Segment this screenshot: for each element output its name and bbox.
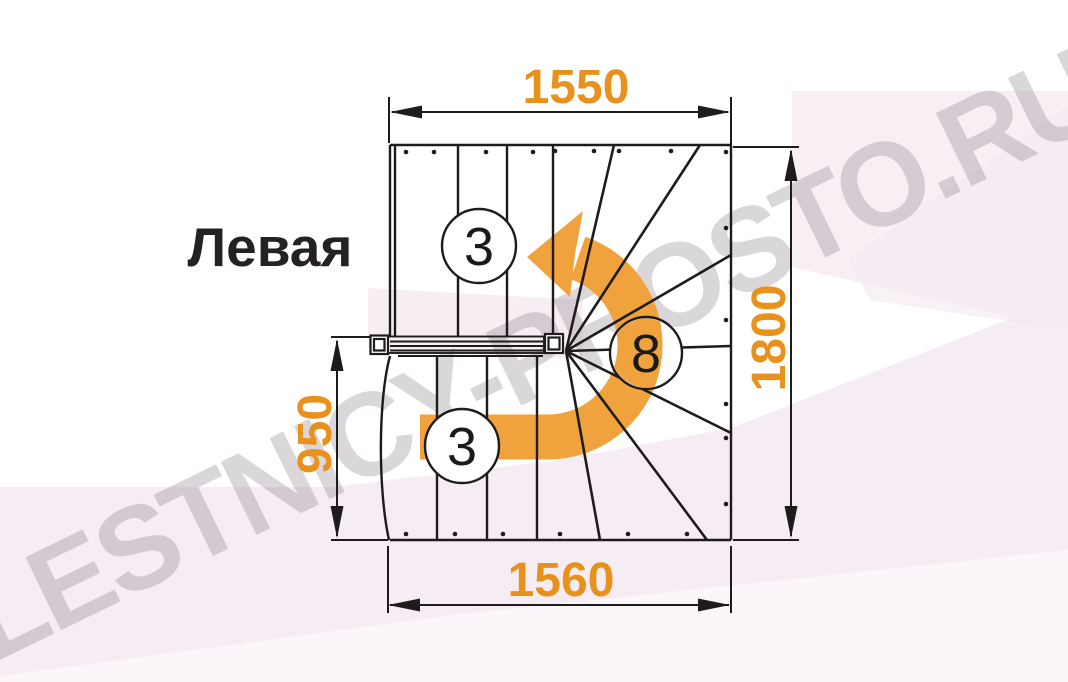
- staircase-drawing: 8 3 3 1550 1800: [0, 0, 1068, 682]
- dimension-left-value: 950: [289, 394, 342, 474]
- dimension-top-value: 1550: [523, 61, 630, 114]
- curved-left-stringer: [381, 356, 390, 540]
- winder-count-label: 8: [631, 324, 661, 384]
- newel-post-right: [545, 334, 563, 353]
- dimension-bottom-value: 1560: [508, 554, 615, 607]
- landing-bar: [388, 337, 544, 357]
- plan-title: Левая: [188, 216, 353, 278]
- bottom-flight-count-label: 3: [447, 417, 477, 477]
- dimension-bottom: 1560: [388, 546, 731, 613]
- newel-post-left: [371, 336, 389, 355]
- dimension-top: 1550: [389, 61, 731, 145]
- bottom-flight-count-badge: 3: [425, 409, 499, 483]
- top-flight-count-label: 3: [464, 217, 494, 277]
- dimension-right-value: 1800: [743, 285, 796, 392]
- staircase-plan-figure: LESTNICY-PROSTO.RU: [0, 0, 1068, 682]
- dimension-left: 950: [289, 337, 388, 540]
- top-flight-count-badge: 3: [442, 209, 516, 283]
- dimension-right: 1800: [733, 147, 799, 540]
